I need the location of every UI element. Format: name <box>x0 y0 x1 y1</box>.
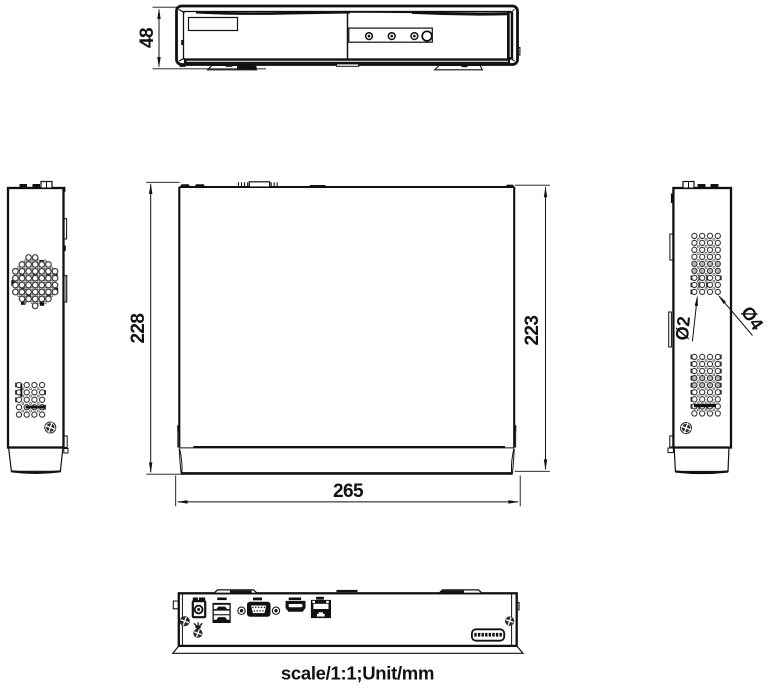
svg-text:228: 228 <box>128 314 149 344</box>
svg-text:Ø2: Ø2 <box>672 316 694 342</box>
svg-text:48: 48 <box>137 28 158 48</box>
svg-text:265: 265 <box>333 481 364 502</box>
svg-text:scale/1:1;Unit/mm: scale/1:1;Unit/mm <box>281 663 434 684</box>
svg-text:223: 223 <box>522 316 543 346</box>
